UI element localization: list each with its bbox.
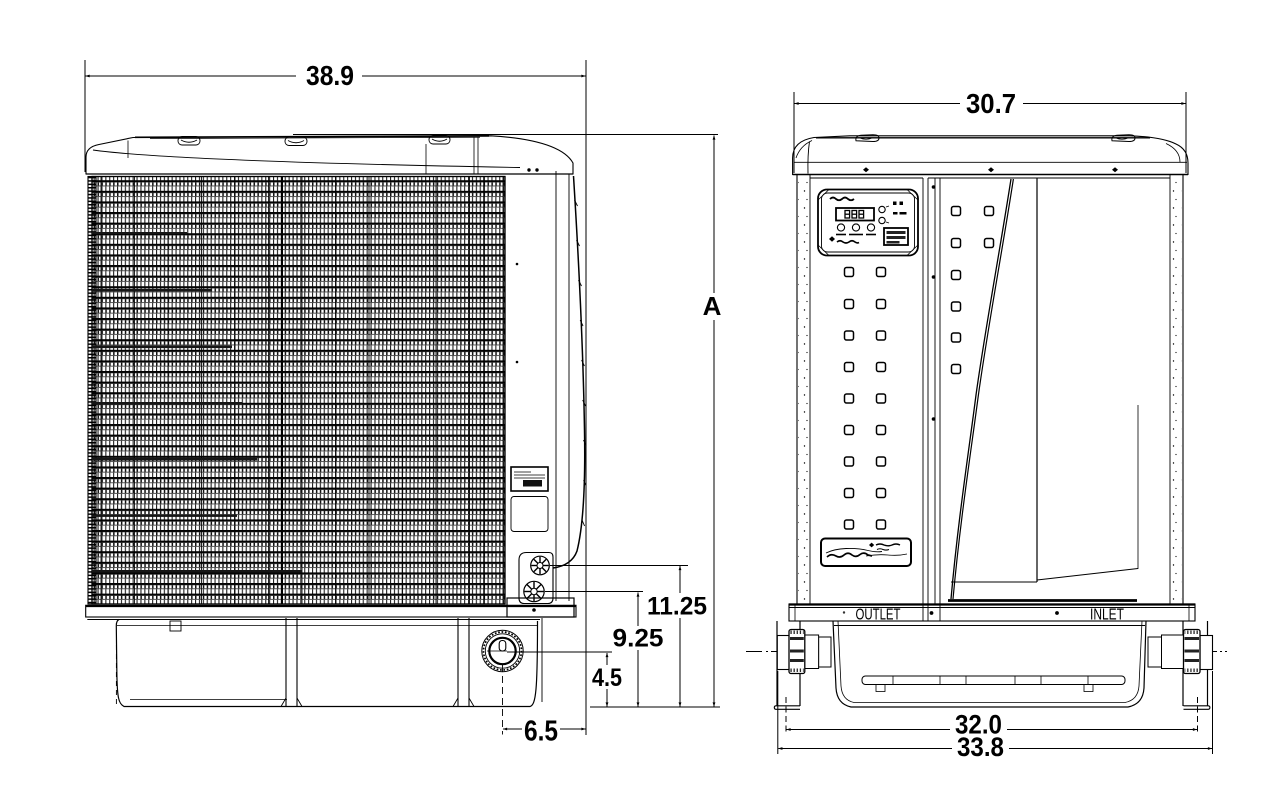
svg-text:A: A xyxy=(703,291,722,321)
svg-text:33.8: 33.8 xyxy=(957,732,1004,762)
svg-text:11.25: 11.25 xyxy=(647,593,707,621)
svg-text:OUTLET: OUTLET xyxy=(856,607,901,624)
svg-text:38.9: 38.9 xyxy=(306,60,354,91)
svg-text:6.5: 6.5 xyxy=(524,716,558,748)
svg-text:9.25: 9.25 xyxy=(613,625,664,653)
svg-text:INLET: INLET xyxy=(1090,607,1124,624)
svg-text:30.7: 30.7 xyxy=(966,88,1016,119)
svg-text:4.5: 4.5 xyxy=(592,664,622,692)
